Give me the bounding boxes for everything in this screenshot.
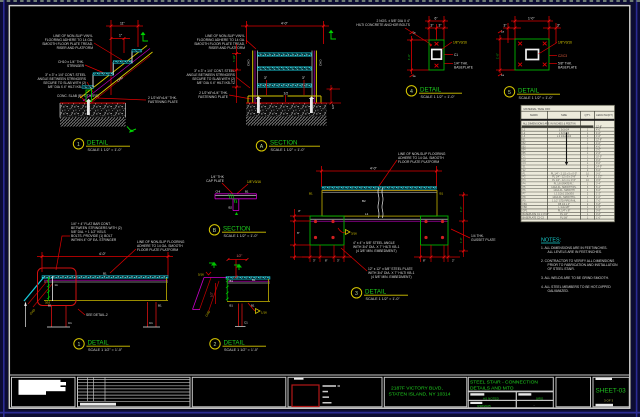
svg-text:5/16: 5/16 (198, 273, 204, 277)
svg-text:DETAIL: DETAIL (224, 339, 246, 346)
svg-text:3": 3" (439, 24, 442, 28)
svg-text:B1: B1 (252, 278, 256, 282)
svg-text:4'-0": 4'-0" (370, 167, 378, 171)
svg-text:CONC. SLAB (BY OTHERS): CONC. SLAB (BY OTHERS) (57, 94, 99, 98)
svg-text:5/8" DIA X 4" HILTI KB-TZ: 5/8" DIA X 4" HILTI KB-TZ (197, 81, 235, 85)
svg-text:1A: 1A (55, 283, 58, 287)
svg-text:FLOOR PLATE PLATFORM: FLOOR PLATE PLATFORM (398, 160, 439, 164)
svg-text:SHEET-03: SHEET-03 (596, 387, 627, 394)
svg-text:SECTION: SECTION (270, 139, 298, 146)
svg-text:1: 1 (78, 342, 81, 348)
svg-text:STRINGER: STRINGER (67, 64, 85, 68)
svg-text:1: 1 (77, 142, 80, 148)
svg-text:C1: C1 (68, 321, 72, 325)
svg-text:3": 3" (298, 209, 301, 213)
svg-text:B1: B1 (103, 272, 107, 276)
svg-text:11": 11" (120, 22, 126, 26)
svg-text:C2/C3: C2/C3 (558, 54, 567, 58)
svg-text:4'-0": 4'-0" (281, 22, 289, 26)
svg-text:B1: B1 (440, 192, 444, 196)
svg-text:2: 2 (214, 342, 217, 348)
svg-text:3": 3" (337, 259, 340, 263)
svg-text:GUSSET PLATE: GUSSET PLATE (471, 238, 496, 242)
svg-text:2": 2" (452, 259, 455, 263)
svg-text:1/2": 1/2" (210, 292, 214, 297)
svg-text:B1: B1 (230, 304, 234, 308)
svg-text:FASTENING PLATE: FASTENING PLATE (148, 100, 179, 104)
svg-text:SCALE 1 1/2" = 1'-0": SCALE 1 1/2" = 1'-0" (88, 148, 123, 152)
svg-text:FASTENING PLATE: FASTENING PLATE (198, 95, 229, 99)
svg-text:B1: B1 (309, 192, 313, 196)
svg-text:SCALE 1 1/2" = 1'-0": SCALE 1 1/2" = 1'-0" (224, 348, 259, 352)
svg-text:DETAILS AND MTO: DETAILS AND MTO (470, 385, 514, 391)
svg-text:1/2: 1/2 (284, 92, 289, 96)
svg-text:3: 3 (355, 291, 358, 297)
svg-text:SEE DETAIL-2: SEE DETAIL-2 (86, 313, 108, 317)
svg-text:MARK: MARK (530, 113, 538, 117)
svg-text:HILTI CONCRETE ANCHOR BOLTS: HILTI CONCRETE ANCHOR BOLTS (356, 23, 411, 27)
svg-text:5: 5 (508, 90, 511, 96)
svg-text:1'-0": 1'-0" (528, 17, 535, 21)
svg-text:LENGTH/(FT): LENGTH/(FT) (596, 113, 613, 117)
svg-text:B: B (213, 228, 217, 234)
svg-text:3": 3" (504, 24, 507, 28)
svg-text:STATEN ISLAND, NY 10314: STATEN ISLAND, NY 10314 (389, 392, 451, 398)
svg-text:6": 6" (297, 231, 300, 235)
svg-text:B1: B1 (158, 304, 162, 308)
svg-text:L1: L1 (365, 212, 369, 216)
svg-text:DETAIL: DETAIL (88, 339, 110, 346)
svg-text:1/8"V3/16: 1/8"V3/16 (247, 180, 261, 184)
svg-text:QTY.: QTY. (585, 113, 591, 117)
svg-text:C1: C1 (244, 321, 248, 325)
svg-text:SECTION: SECTION (223, 225, 251, 232)
svg-text:4: 4 (410, 89, 413, 95)
svg-text:1/2": 1/2" (237, 254, 244, 258)
svg-text:1/8"V3/16: 1/8"V3/16 (453, 41, 467, 45)
svg-text:3. ALL WELDS ARE TO BE GRIND: 3. ALL WELDS ARE TO BE GRIND SMOOTH. (541, 276, 609, 280)
svg-text:1/8"V3/16: 1/8"V3/16 (558, 41, 572, 45)
svg-text:CAP PLATE: CAP PLATE (206, 179, 225, 183)
svg-text:1'-0": 1'-0" (496, 53, 500, 59)
svg-text:BASEPLATE: BASEPLATE (558, 66, 578, 70)
svg-text:3": 3" (431, 24, 434, 28)
svg-text:CHD: CHD (247, 59, 251, 66)
svg-text:RISER AND PLATFORM: RISER AND PLATFORM (209, 46, 246, 50)
svg-text:2187F VICTORY BLVD,: 2187F VICTORY BLVD, (391, 386, 443, 392)
svg-text:5/8" DIA X 4" HILTI KB-TZ: 5/8" DIA X 4" HILTI KB-TZ (48, 85, 86, 89)
svg-text:GALVANIZED.: GALVANIZED. (548, 289, 569, 293)
svg-text:DETAIL: DETAIL (87, 139, 109, 146)
svg-text:FLOOR PLATE PLATFORM: FLOOR PLATE PLATFORM (137, 248, 178, 252)
svg-text:OF STEEL STAIR.: OF STEEL STAIR. (548, 267, 575, 271)
svg-text:-: - (534, 403, 535, 407)
svg-text:4'-0": 4'-0" (99, 252, 107, 256)
svg-text:RISER AND PLATFORM: RISER AND PLATFORM (57, 46, 94, 50)
svg-text:SCALE 1 1/2" = 1'-0": SCALE 1 1/2" = 1'-0" (224, 234, 259, 238)
svg-text:DETAIL: DETAIL (420, 86, 442, 93)
svg-text:SCALE 1 1/2" = 1'-0": SCALE 1 1/2" = 1'-0" (366, 297, 401, 301)
svg-text:3/18/2025: 3/18/2025 (477, 404, 491, 408)
svg-text:SCALE 1 1/2" = 1'-0": SCALE 1 1/2" = 1'-0" (271, 148, 306, 152)
svg-text:SCALE 1 1/2" = 1'-0": SCALE 1 1/2" = 1'-0" (421, 95, 456, 99)
svg-text:SCALE 1 1/2" = 1'-0": SCALE 1 1/2" = 1'-0" (88, 348, 123, 352)
svg-text:B1: B1 (245, 190, 249, 194)
svg-text:1/2": 1/2" (331, 104, 335, 109)
svg-text:(4 3/8" MIN. EMBEDMENT): (4 3/8" MIN. EMBEDMENT) (356, 249, 397, 253)
svg-text:CHI: CHI (216, 190, 221, 194)
svg-text:C1: C1 (149, 321, 153, 325)
svg-text:B1: B1 (230, 279, 234, 283)
svg-text:ALL LEVELS ARE IN FEET/INCHES.: ALL LEVELS ARE IN FEET/INCHES. (548, 250, 603, 254)
svg-text:(4 5/8" MIN. EMBEDMENT): (4 5/8" MIN. EMBEDMENT) (371, 275, 412, 279)
svg-text:SCALE 1 1/2" = 1'-0": SCALE 1 1/2" = 1'-0" (519, 96, 554, 100)
svg-text:DETAIL: DETAIL (365, 288, 387, 295)
svg-text:SIZE: SIZE (561, 113, 567, 117)
svg-text:ALL DIMENSIONS ARE IN INCHES &: ALL DIMENSIONS ARE IN INCHES & FEET/IN (523, 123, 576, 126)
svg-text:1'-0": 1'-0" (459, 206, 463, 212)
svg-text:WITHIN 4" OF EA. STRINGER: WITHIN 4" OF EA. STRINGER (71, 238, 117, 242)
svg-text:8": 8" (325, 259, 328, 263)
svg-text:3": 3" (313, 259, 316, 263)
svg-text:1/16: 1/16 (261, 311, 267, 315)
svg-text:3/16: 3/16 (351, 232, 357, 236)
svg-text:STEEL STAIR - CONNECTION: STEEL STAIR - CONNECTION (470, 379, 538, 385)
svg-text:MATERIAL TAKE OFF: MATERIAL TAKE OFF (524, 107, 551, 111)
svg-text:DETAIL: DETAIL (518, 87, 540, 94)
svg-text:3 OF 3: 3 OF 3 (604, 399, 614, 403)
svg-text:B2: B2 (229, 206, 233, 210)
svg-text:1'-0": 1'-0" (407, 54, 411, 60)
svg-text:CHD: CHD (319, 59, 323, 66)
svg-text:A: A (260, 144, 264, 150)
svg-text:BASEPLATE: BASEPLATE (454, 66, 474, 70)
svg-text:5 1/2": 5 1/2" (232, 55, 236, 62)
svg-text:1'-0": 1'-0" (459, 237, 463, 243)
svg-text:B2: B2 (362, 199, 366, 203)
svg-text:C1: C1 (454, 53, 458, 57)
svg-text:8": 8" (423, 259, 426, 263)
